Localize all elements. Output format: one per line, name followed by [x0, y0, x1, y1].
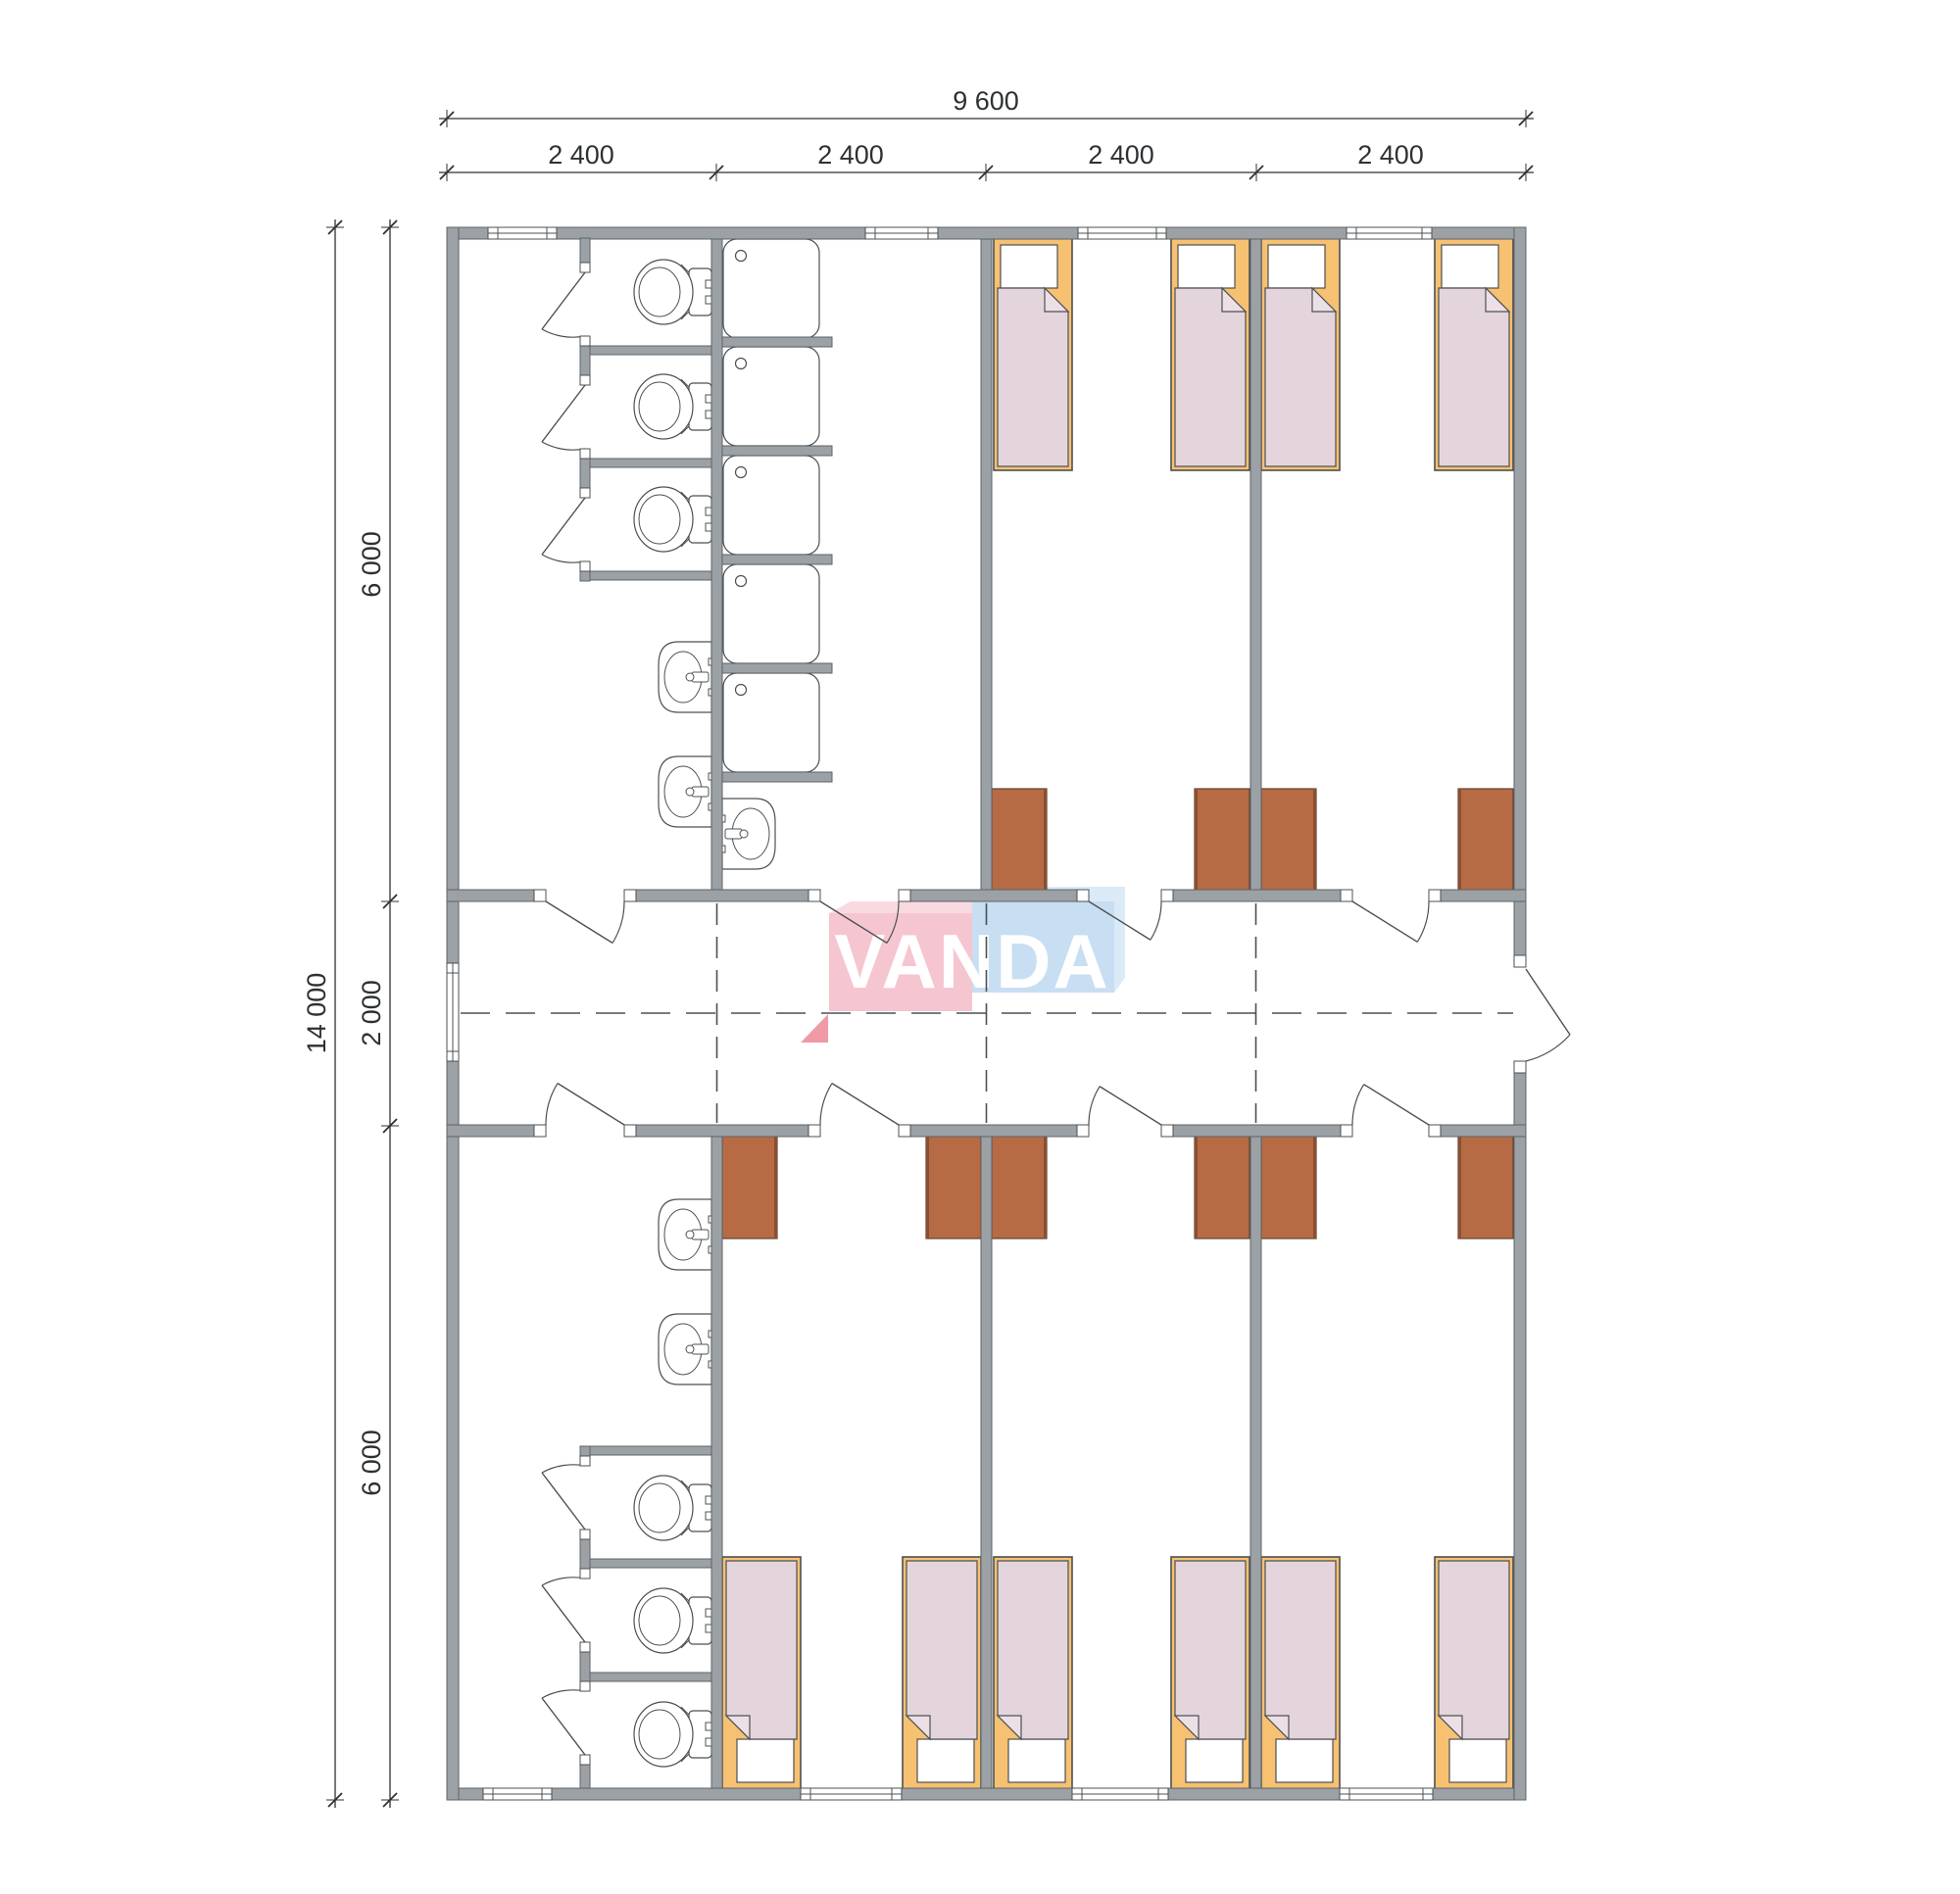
room-door	[546, 1084, 624, 1125]
watermark-pink-side	[801, 1014, 828, 1043]
washbasin	[659, 1314, 713, 1384]
room-door	[820, 1084, 899, 1125]
door-jamb	[1161, 1125, 1173, 1137]
door-jamb	[580, 1755, 590, 1765]
door-jamb	[580, 336, 590, 346]
shower-tray	[723, 347, 819, 446]
wardrobe	[1195, 1134, 1249, 1238]
floor-plan-page: VANDA 9 600 2 400 2 400 2 400 2 400 14 0…	[0, 0, 1960, 1894]
door-jamb	[1161, 890, 1173, 901]
toilet	[634, 374, 711, 439]
bed	[1171, 1557, 1249, 1790]
shower-tray	[723, 239, 819, 338]
door-jamb	[1429, 890, 1441, 901]
stall-door	[542, 1578, 585, 1642]
door-jamb	[580, 1642, 590, 1652]
shower-partition	[722, 555, 832, 564]
washbasin	[720, 799, 775, 869]
exterior-wall-bottom	[902, 1788, 1072, 1800]
corridor-wall-top	[1161, 890, 1352, 901]
door-jamb	[899, 890, 910, 901]
door-jamb	[808, 1125, 820, 1137]
toilet	[634, 487, 711, 552]
door-jamb	[580, 1681, 590, 1691]
wardrobe	[722, 1134, 777, 1238]
room-door	[546, 901, 624, 943]
wardrobe	[1458, 789, 1513, 894]
door-jamb	[1077, 890, 1089, 901]
watermark-logo: VANDA	[801, 887, 1125, 1043]
stall-partition	[580, 1446, 711, 1455]
toilet	[634, 1588, 711, 1653]
dim-depth-top-band: 6 000	[357, 531, 386, 598]
room-partition-wall	[981, 239, 992, 890]
door-jamb	[1077, 1125, 1089, 1137]
door-jamb	[899, 1125, 910, 1137]
bed	[1171, 237, 1249, 470]
window	[1078, 227, 1166, 239]
door-jamb	[534, 890, 546, 901]
dim-total-depth: 14 000	[302, 973, 331, 1054]
stall-partition	[580, 1673, 711, 1681]
exterior-wall-bottom	[1168, 1788, 1340, 1800]
bed	[903, 1557, 981, 1790]
wardrobe	[1458, 1134, 1513, 1238]
shower-tray	[723, 564, 819, 663]
corridor-wall-top	[899, 890, 1089, 901]
toilet	[634, 1476, 711, 1540]
corridor-wall-bottom	[624, 1125, 820, 1137]
stall-partition	[580, 346, 711, 355]
room-door	[1352, 1085, 1429, 1125]
window	[865, 227, 938, 239]
bed	[1261, 237, 1340, 470]
exterior-wall-left	[447, 227, 459, 963]
dim-module-width-4: 2 400	[1357, 140, 1424, 170]
exterior-wall-bottom	[552, 1788, 801, 1800]
stall-door	[542, 272, 585, 337]
bed	[1261, 1557, 1340, 1790]
corridor-wall-top	[624, 890, 820, 901]
shower-partition	[722, 446, 832, 456]
corridor-wall-bottom	[899, 1125, 1089, 1137]
dim-depth-corridor: 2 000	[357, 980, 386, 1046]
exterior-wall-bottom	[1433, 1788, 1526, 1800]
toilet	[634, 260, 711, 324]
exterior-wall-right	[1514, 227, 1526, 967]
door-jamb	[580, 1456, 590, 1466]
dim-module-width-1: 2 400	[548, 140, 614, 170]
exterior-wall-right	[1514, 1061, 1526, 1800]
washbasin	[659, 756, 713, 827]
window	[1072, 1788, 1168, 1800]
dim-total-width: 9 600	[953, 86, 1019, 116]
wardrobe	[1261, 789, 1316, 894]
wardrobe	[1261, 1134, 1316, 1238]
corridor-wall-bottom	[447, 1125, 546, 1137]
stall-door	[542, 498, 585, 562]
door-jamb	[624, 1125, 636, 1137]
room-door	[1089, 1087, 1161, 1125]
exterior-wall-left	[447, 1061, 459, 1800]
shower-partition	[722, 772, 832, 782]
door-jamb	[534, 1125, 546, 1137]
washbasin	[659, 642, 713, 712]
wardrobe	[992, 1134, 1047, 1238]
room-door	[1352, 901, 1429, 942]
window	[483, 1788, 552, 1800]
room-partition-wall	[1250, 239, 1261, 890]
door-jamb	[580, 1530, 590, 1539]
bed	[994, 237, 1072, 470]
dim-depth-bottom-band: 6 000	[357, 1430, 386, 1496]
room-partition-wall	[981, 1137, 992, 1788]
room-partition-wall	[1250, 1137, 1261, 1788]
door-jamb	[580, 1569, 590, 1578]
watermark-pink-top	[829, 901, 972, 913]
window	[801, 1788, 902, 1800]
stall-partition	[580, 571, 711, 580]
exterior-wall-top	[938, 227, 1078, 239]
stall-door	[542, 385, 585, 450]
exterior-door	[1526, 969, 1570, 1061]
door-jamb	[580, 263, 590, 272]
door-jamb	[1341, 890, 1352, 901]
shower-partition	[722, 663, 832, 673]
door-jamb	[1514, 1061, 1526, 1073]
stall-door	[542, 1690, 585, 1755]
shower-tray	[723, 673, 819, 772]
room-partition-wall	[711, 1137, 722, 1788]
room-partition-wall	[711, 239, 722, 890]
corridor-wall-bottom	[1161, 1125, 1352, 1137]
bed	[722, 1557, 801, 1790]
wardrobe	[926, 1134, 981, 1238]
toilet	[634, 1702, 711, 1767]
corridor-wall-bottom	[1429, 1125, 1526, 1137]
exterior-wall-top	[1432, 227, 1526, 239]
stall-partition	[580, 1559, 711, 1568]
wardrobe	[1195, 789, 1249, 894]
washbasin	[659, 1199, 713, 1270]
window	[1347, 227, 1432, 239]
stall-door	[542, 1465, 585, 1530]
door-jamb	[808, 890, 820, 901]
door-jamb	[1341, 1125, 1352, 1137]
door-jamb	[580, 488, 590, 498]
bed	[1435, 237, 1513, 470]
corridor-wall-top	[447, 890, 546, 901]
stall-partition	[580, 459, 711, 467]
bed	[994, 1557, 1072, 1790]
door-jamb	[1429, 1125, 1441, 1137]
window	[1340, 1788, 1433, 1800]
window	[488, 227, 557, 239]
door-jamb	[580, 375, 590, 385]
dim-module-width-2: 2 400	[817, 140, 884, 170]
watermark-text: VANDA	[834, 918, 1110, 1004]
floor-plan: VANDA 9 600 2 400 2 400 2 400 2 400 14 0…	[0, 0, 1960, 1894]
dim-module-width-3: 2 400	[1088, 140, 1154, 170]
exterior-wall-top	[557, 227, 865, 239]
door-jamb	[580, 561, 590, 571]
wardrobe	[992, 789, 1047, 894]
shower-tray	[723, 456, 819, 555]
door-jamb	[1514, 955, 1526, 967]
shower-partition	[722, 337, 832, 347]
bed	[1435, 1557, 1513, 1790]
exterior-wall-top	[1166, 227, 1347, 239]
door-jamb	[624, 890, 636, 901]
door-jamb	[580, 449, 590, 459]
corridor-wall-top	[1429, 890, 1526, 901]
window	[447, 963, 459, 1061]
